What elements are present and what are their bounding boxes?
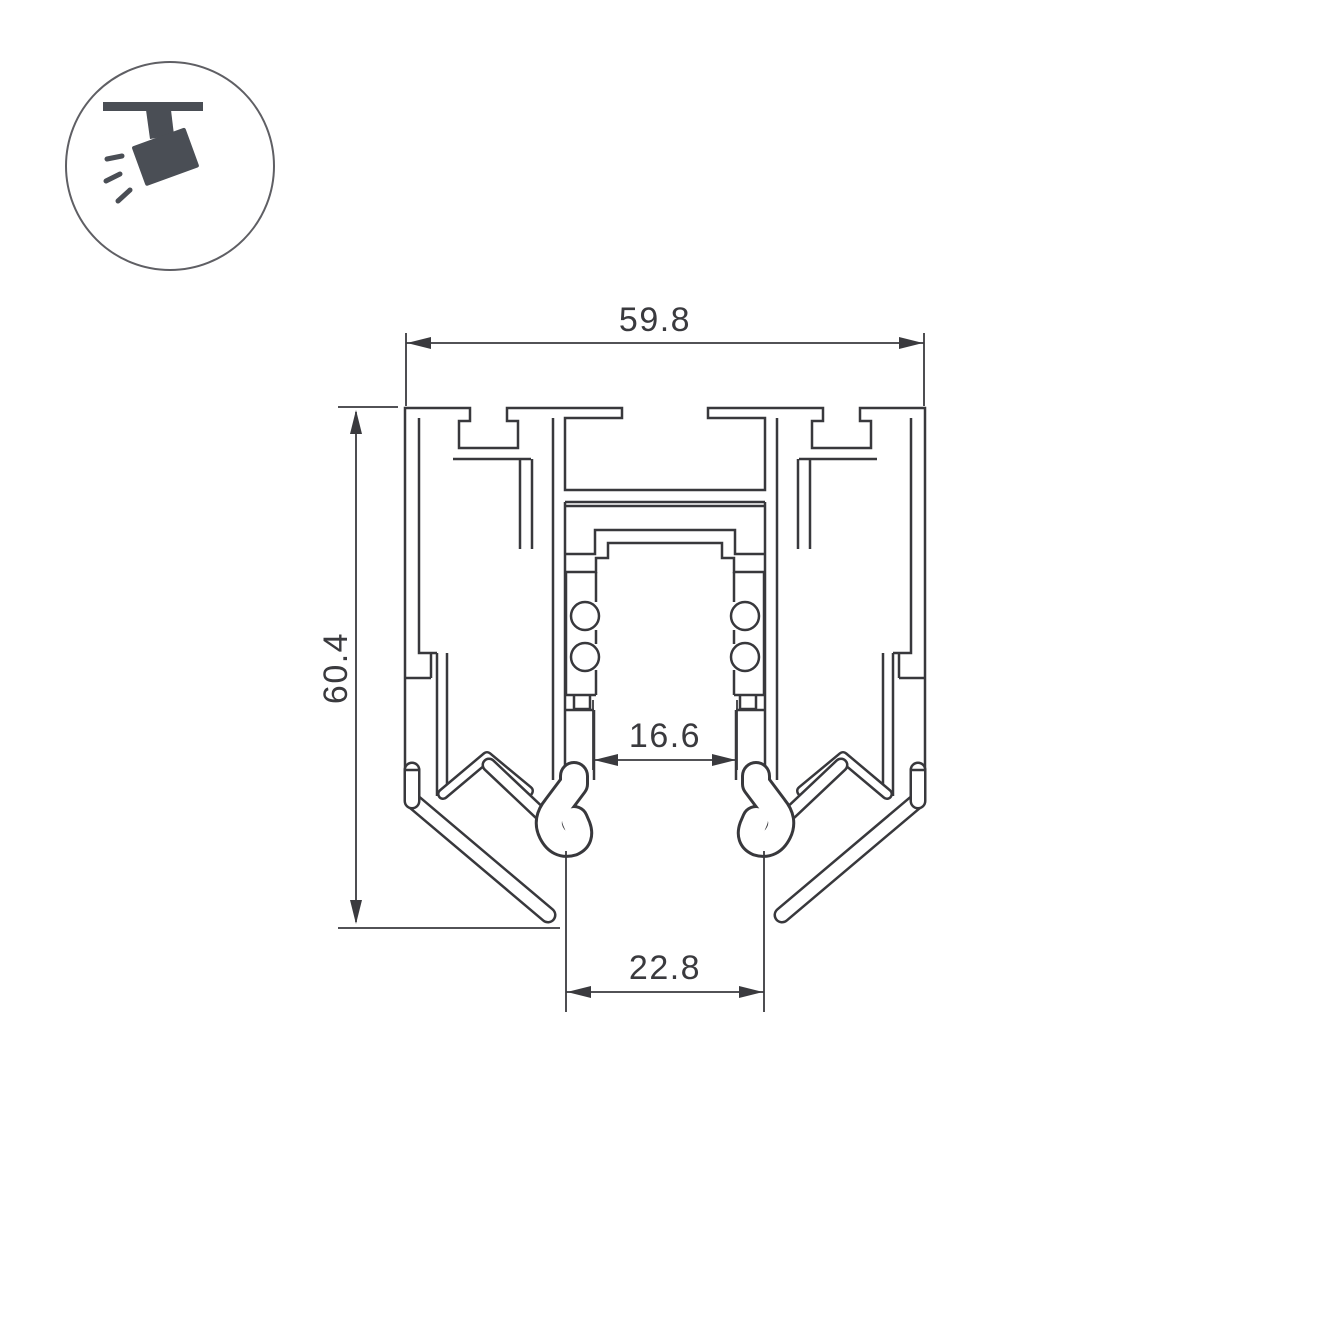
profile-right-half xyxy=(665,408,927,915)
icon-ceiling-bar xyxy=(103,102,203,111)
dimension-height-left: 60.4 xyxy=(317,407,560,928)
track-spotlight-badge xyxy=(66,62,274,270)
technical-drawing: 59.8 60.4 16.6 22.8 xyxy=(0,0,1331,1331)
conductor-contact xyxy=(571,643,599,671)
conductor-contact xyxy=(571,602,599,630)
icon-lamp-head xyxy=(132,127,200,186)
dimension-inner-width: 16.6 xyxy=(593,700,737,770)
icon-light-ray xyxy=(118,190,130,201)
icon-light-ray xyxy=(107,156,122,159)
page-canvas: 59.8 60.4 16.6 22.8 xyxy=(0,0,1331,1331)
icon-light-ray xyxy=(106,174,120,181)
dim-label-bottom-width: 22.8 xyxy=(629,949,701,987)
dim-label-width-top: 59.8 xyxy=(619,301,691,339)
profile-left-half xyxy=(404,408,666,915)
ceiling-track-spotlight-icon xyxy=(103,102,203,201)
dim-label-inner-width: 16.6 xyxy=(629,717,701,755)
dim-label-height-left: 60.4 xyxy=(317,632,355,704)
dimension-bottom-width: 22.8 xyxy=(566,851,764,1012)
dimension-width-top: 59.8 xyxy=(406,301,924,406)
